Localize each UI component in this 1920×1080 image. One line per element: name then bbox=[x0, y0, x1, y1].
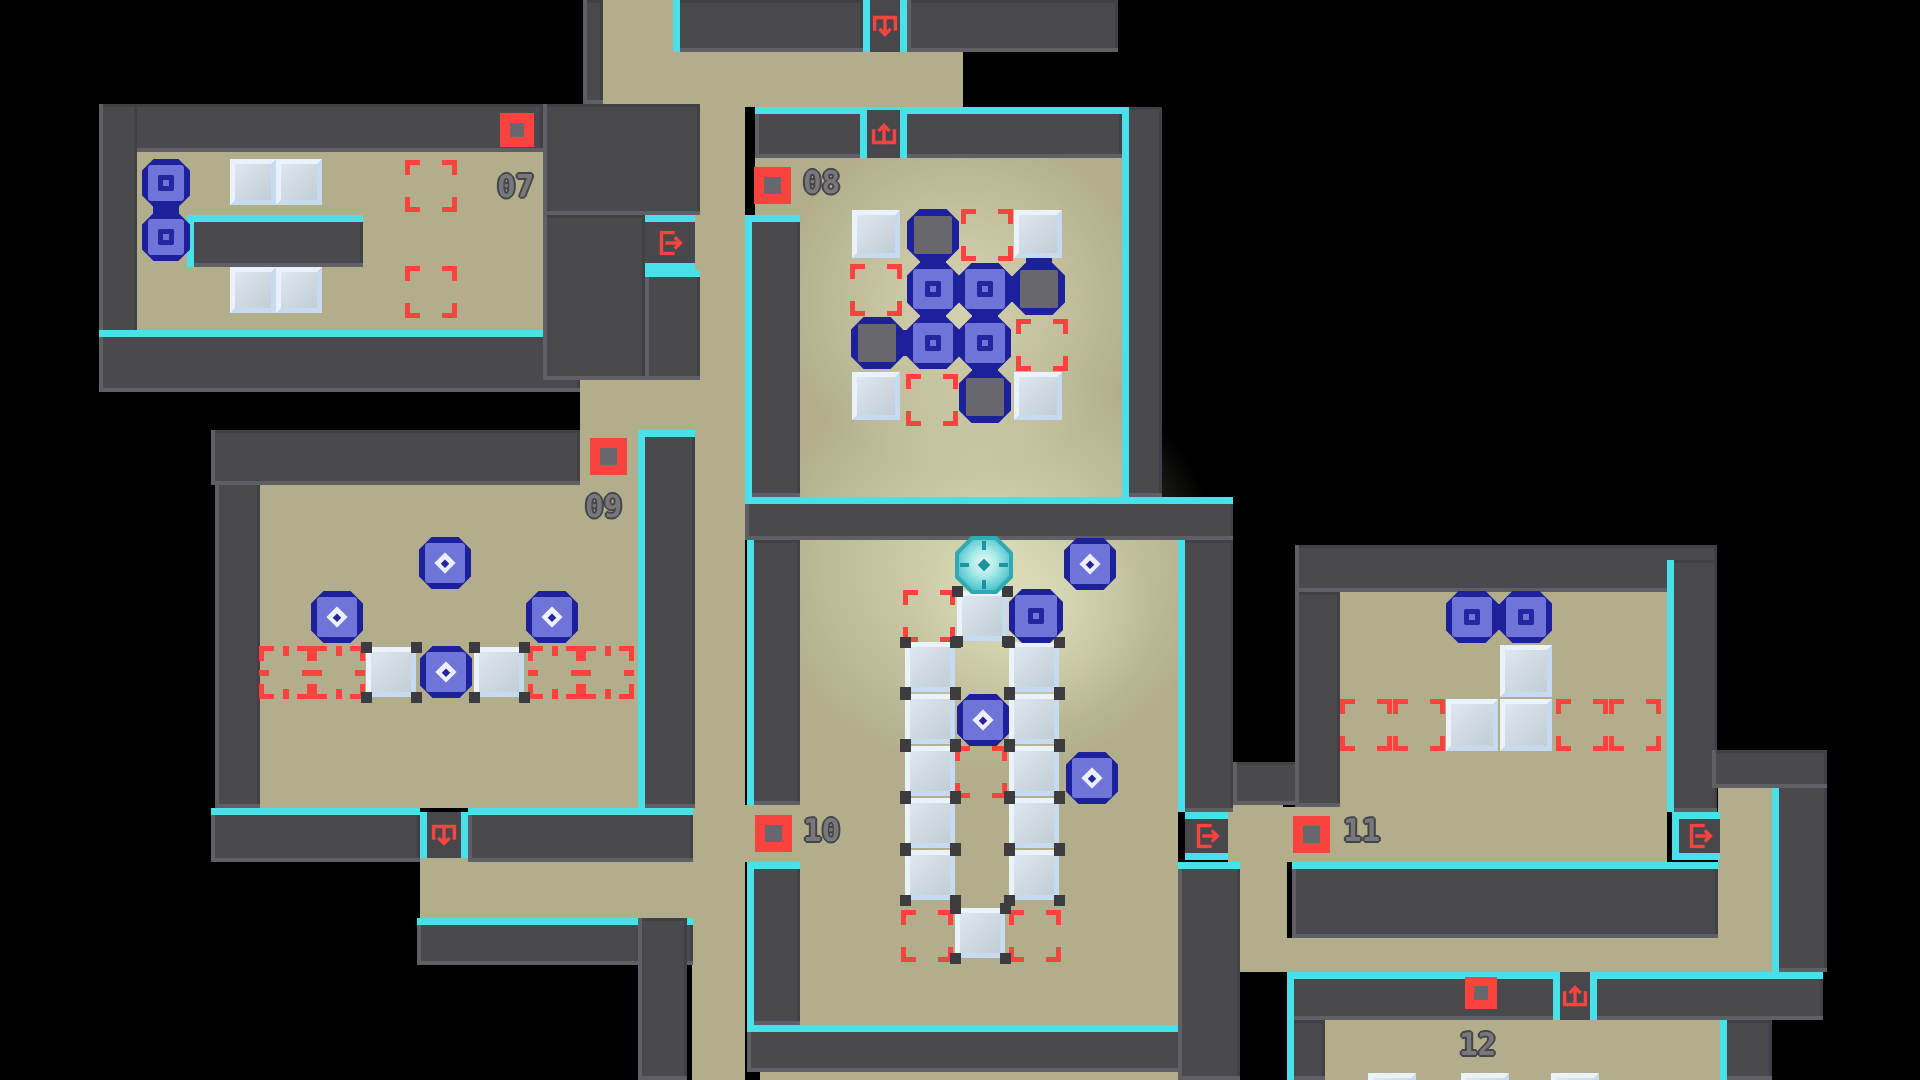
wall bbox=[1720, 1020, 1772, 1080]
grid-dot bbox=[900, 793, 911, 804]
grid-dot bbox=[469, 642, 480, 653]
wall bbox=[543, 215, 645, 380]
target-marker bbox=[901, 910, 953, 962]
target-marker bbox=[1609, 699, 1661, 751]
square-core-icon bbox=[158, 229, 174, 245]
wall bbox=[747, 540, 800, 805]
grid-dot bbox=[1054, 845, 1065, 856]
button-core-icon bbox=[764, 177, 780, 193]
wall bbox=[747, 1025, 1190, 1072]
room-label-08: 08 bbox=[803, 168, 840, 199]
square-core-icon bbox=[925, 335, 941, 351]
grid-dot bbox=[900, 845, 911, 856]
target-marker bbox=[961, 209, 1013, 261]
wall-trim bbox=[645, 270, 700, 277]
white-box[interactable] bbox=[474, 647, 524, 697]
floor bbox=[760, 1072, 1190, 1080]
blue-token[interactable] bbox=[959, 317, 1011, 369]
blue-token[interactable] bbox=[526, 591, 578, 643]
white-box[interactable] bbox=[230, 267, 276, 313]
covered-block[interactable] bbox=[907, 209, 959, 261]
square-core-icon bbox=[977, 281, 993, 297]
grid-dot bbox=[1054, 689, 1065, 700]
room-button-11[interactable] bbox=[1293, 816, 1330, 853]
target-marker bbox=[259, 646, 312, 699]
wall bbox=[747, 862, 800, 1025]
white-box[interactable] bbox=[1009, 850, 1059, 900]
blue-token[interactable] bbox=[142, 159, 190, 207]
white-box[interactable] bbox=[1446, 699, 1498, 751]
grid-dot bbox=[411, 642, 422, 653]
target-marker bbox=[1009, 910, 1061, 962]
white-box[interactable] bbox=[1014, 372, 1062, 420]
target-marker bbox=[1556, 699, 1608, 751]
grid-dot bbox=[950, 845, 961, 856]
blue-token[interactable] bbox=[142, 213, 190, 261]
white-box[interactable] bbox=[366, 647, 416, 697]
white-box[interactable] bbox=[230, 159, 276, 205]
white-box[interactable] bbox=[1551, 1073, 1599, 1080]
target-marker bbox=[1016, 319, 1068, 371]
wall bbox=[907, 0, 1118, 52]
grid-dot bbox=[950, 793, 961, 804]
target-marker bbox=[903, 590, 955, 642]
grid-dot bbox=[519, 692, 530, 703]
room-button-10[interactable] bbox=[755, 815, 792, 852]
grid-dot bbox=[519, 642, 530, 653]
covered-block[interactable] bbox=[1013, 263, 1065, 315]
covered-block[interactable] bbox=[959, 371, 1011, 423]
wall-trim bbox=[1122, 107, 1129, 497]
wall-trim bbox=[1178, 862, 1240, 869]
blue-token[interactable] bbox=[957, 694, 1009, 746]
grid-dot bbox=[1004, 637, 1015, 648]
wall-trim bbox=[747, 862, 800, 869]
door-up-icon[interactable] bbox=[860, 110, 907, 158]
wall-trim bbox=[673, 0, 680, 52]
blue-token[interactable] bbox=[420, 646, 472, 698]
square-core-icon bbox=[1028, 608, 1044, 624]
wall bbox=[1178, 862, 1240, 1080]
square-core-icon bbox=[1464, 609, 1480, 625]
covered-block[interactable] bbox=[851, 317, 903, 369]
door-right-icon[interactable] bbox=[1185, 812, 1228, 860]
white-box[interactable] bbox=[1009, 798, 1059, 848]
wall bbox=[638, 918, 687, 1080]
wall bbox=[1295, 592, 1340, 807]
wall-trim bbox=[745, 215, 752, 497]
wall bbox=[1667, 560, 1717, 812]
square-core-icon bbox=[1518, 609, 1534, 625]
target-marker bbox=[850, 264, 902, 316]
blue-token[interactable] bbox=[1064, 538, 1116, 590]
grid-dot bbox=[900, 895, 911, 906]
wall bbox=[1712, 750, 1827, 788]
grid-dot bbox=[900, 741, 911, 752]
white-box[interactable] bbox=[905, 642, 955, 692]
room-button-12[interactable] bbox=[1465, 977, 1497, 1009]
square-core-icon bbox=[158, 175, 174, 191]
blue-token[interactable] bbox=[1500, 591, 1552, 643]
wall bbox=[583, 0, 603, 104]
grid-dot bbox=[900, 637, 911, 648]
button-core-icon bbox=[510, 123, 525, 138]
room-label-09: 09 bbox=[585, 492, 622, 523]
white-box[interactable] bbox=[852, 210, 900, 258]
white-box[interactable] bbox=[905, 694, 955, 744]
room-label-12: 12 bbox=[1459, 1030, 1496, 1061]
target-marker bbox=[405, 266, 457, 318]
floor bbox=[1325, 1020, 1720, 1080]
white-box[interactable] bbox=[1500, 645, 1552, 697]
room-button-09[interactable] bbox=[590, 438, 627, 475]
wall-trim bbox=[1720, 1020, 1727, 1080]
button-core-icon bbox=[1303, 826, 1319, 842]
square-core-icon bbox=[925, 281, 941, 297]
target-marker bbox=[528, 646, 581, 699]
wall-trim bbox=[755, 107, 1122, 114]
door-down-icon[interactable] bbox=[863, 0, 907, 52]
button-core-icon bbox=[600, 448, 616, 464]
target-marker bbox=[906, 374, 958, 426]
grid-dot bbox=[1004, 741, 1015, 752]
target-marker bbox=[312, 646, 365, 699]
door-right-icon[interactable] bbox=[645, 215, 695, 270]
wall-trim bbox=[1772, 780, 1779, 972]
room-button-08[interactable] bbox=[754, 167, 791, 204]
grid-dot bbox=[952, 586, 963, 597]
wall-trim bbox=[638, 430, 645, 808]
target-marker bbox=[405, 160, 457, 212]
room-button-07[interactable] bbox=[500, 113, 534, 147]
white-box[interactable] bbox=[1500, 699, 1552, 751]
wall-trim bbox=[99, 330, 580, 337]
white-box[interactable] bbox=[1009, 694, 1059, 744]
grid-dot bbox=[900, 689, 911, 700]
grid-dot bbox=[950, 689, 961, 700]
wall-trim bbox=[745, 215, 800, 222]
button-core-icon bbox=[1474, 986, 1488, 1000]
grid-dot bbox=[950, 741, 961, 752]
blue-token[interactable] bbox=[311, 591, 363, 643]
wall bbox=[638, 430, 695, 808]
grid-dot bbox=[361, 642, 372, 653]
grid-dot bbox=[1004, 845, 1015, 856]
wall bbox=[99, 104, 543, 152]
player-avatar[interactable] bbox=[955, 536, 1013, 594]
white-box[interactable] bbox=[905, 746, 955, 796]
wall-trim bbox=[1292, 862, 1718, 869]
wall-trim bbox=[211, 808, 420, 815]
wall-trim bbox=[747, 862, 754, 1025]
wall-trim bbox=[1287, 1020, 1294, 1080]
grid-dot bbox=[1004, 689, 1015, 700]
blue-token[interactable] bbox=[419, 537, 471, 589]
white-box[interactable] bbox=[852, 372, 900, 420]
grid-dot bbox=[1054, 637, 1065, 648]
white-box[interactable] bbox=[1009, 746, 1059, 796]
target-marker bbox=[581, 646, 634, 699]
wall-trim bbox=[638, 430, 695, 437]
room-label-11: 11 bbox=[1343, 816, 1380, 847]
wall-trim bbox=[1667, 560, 1674, 812]
wall bbox=[543, 104, 700, 215]
wall bbox=[215, 430, 260, 808]
wall-trim bbox=[187, 215, 363, 222]
wall bbox=[468, 808, 693, 862]
grid-dot bbox=[469, 692, 480, 703]
room-label-07: 07 bbox=[497, 172, 534, 203]
wall-trim bbox=[1287, 972, 1294, 1020]
floor bbox=[1718, 788, 1772, 972]
wall bbox=[1772, 780, 1827, 972]
grid-dot bbox=[950, 637, 961, 648]
grid-dot bbox=[1000, 903, 1011, 914]
grid-dot bbox=[1000, 953, 1011, 964]
white-box[interactable] bbox=[955, 908, 1005, 958]
wall bbox=[755, 107, 1122, 158]
wall bbox=[673, 0, 863, 52]
blue-token[interactable] bbox=[1446, 591, 1498, 643]
white-box[interactable] bbox=[1368, 1073, 1416, 1080]
floor bbox=[1283, 807, 1667, 862]
floor bbox=[420, 858, 693, 918]
white-box[interactable] bbox=[905, 798, 955, 848]
grid-dot bbox=[1054, 895, 1065, 906]
wall-trim bbox=[747, 1025, 1190, 1032]
wall bbox=[99, 330, 580, 392]
wall bbox=[1292, 862, 1718, 938]
grid-dot bbox=[1004, 793, 1015, 804]
wall bbox=[187, 215, 363, 267]
blue-token[interactable] bbox=[1009, 589, 1063, 643]
grid-dot bbox=[361, 692, 372, 703]
floor bbox=[1228, 805, 1283, 862]
blue-token[interactable] bbox=[907, 317, 959, 369]
grid-dot bbox=[1054, 793, 1065, 804]
wall bbox=[211, 808, 420, 862]
white-box[interactable] bbox=[276, 159, 322, 205]
target-marker bbox=[1340, 699, 1392, 751]
room-label-10: 10 bbox=[803, 816, 840, 847]
door-up-icon[interactable] bbox=[1553, 972, 1597, 1020]
grid-dot bbox=[950, 903, 961, 914]
white-box[interactable] bbox=[1461, 1073, 1509, 1080]
grid-dot bbox=[1054, 741, 1065, 752]
grid-dot bbox=[411, 692, 422, 703]
blue-token[interactable] bbox=[1066, 752, 1118, 804]
square-core-icon bbox=[977, 335, 993, 351]
floor bbox=[603, 52, 963, 107]
wall bbox=[211, 430, 580, 485]
white-box[interactable] bbox=[905, 850, 955, 900]
blue-token[interactable] bbox=[959, 263, 1011, 315]
wall bbox=[645, 270, 700, 380]
white-box[interactable] bbox=[1014, 210, 1062, 258]
grid-dot bbox=[950, 953, 961, 964]
button-core-icon bbox=[765, 825, 781, 841]
wall bbox=[1295, 545, 1717, 592]
wall-trim bbox=[468, 808, 693, 815]
floor bbox=[692, 107, 745, 1080]
wall-trim bbox=[745, 497, 1233, 504]
wall bbox=[1178, 540, 1233, 812]
target-marker bbox=[955, 746, 1007, 798]
door-down-icon[interactable] bbox=[420, 812, 468, 858]
target-marker bbox=[1393, 699, 1445, 751]
blue-token[interactable] bbox=[907, 263, 959, 315]
floor bbox=[580, 380, 695, 430]
white-box[interactable] bbox=[276, 267, 322, 313]
game-viewport: 070809101112 bbox=[0, 0, 1920, 1080]
wall-trim bbox=[747, 540, 754, 805]
door-right-icon[interactable] bbox=[1672, 812, 1720, 860]
wall bbox=[745, 215, 800, 497]
white-box[interactable] bbox=[1009, 642, 1059, 692]
wall-trim bbox=[1178, 540, 1185, 812]
white-box[interactable] bbox=[957, 591, 1007, 641]
